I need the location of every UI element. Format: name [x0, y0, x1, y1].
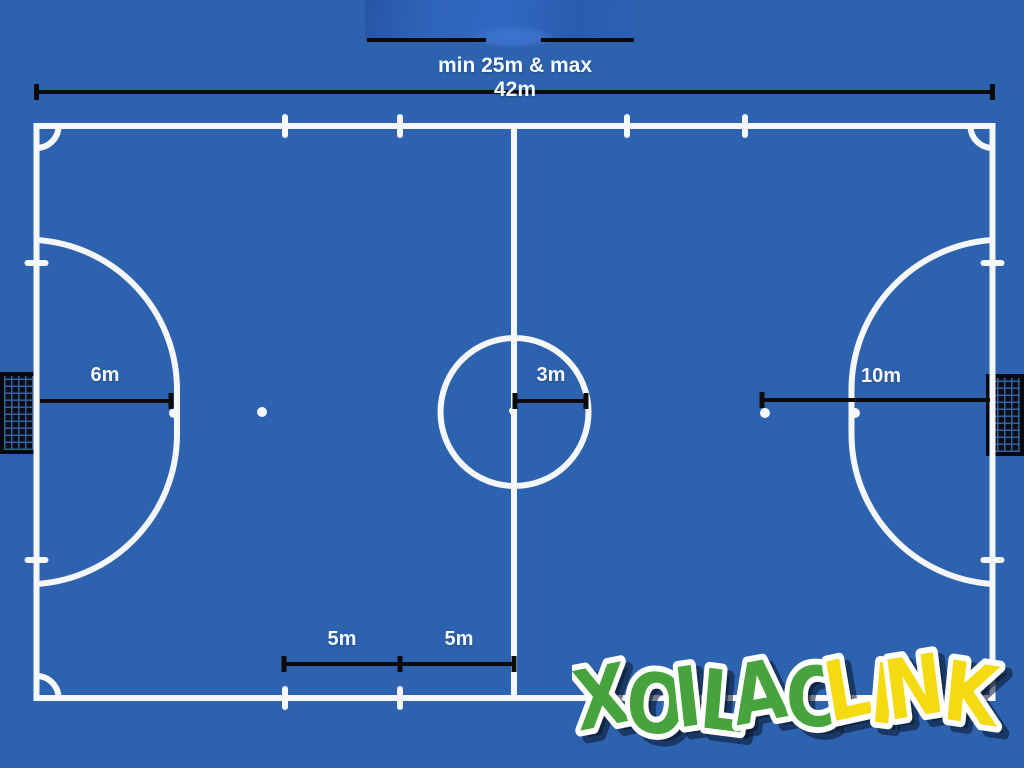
- watermark-logo: XOILACLINK XOILACLINK: [572, 636, 1022, 760]
- watermark-text-yellow: LINK: [817, 636, 1008, 753]
- watermark-text-green: XOILAC: [572, 638, 839, 759]
- corner-arc-top-left: [37, 126, 59, 148]
- right-penalty-area: [852, 240, 993, 584]
- futsal-court-diagram: { "colors": { "background": "#2d63ae", "…: [0, 0, 1024, 768]
- left-penalty-spot: [169, 408, 179, 418]
- right-second-penalty-spot: [760, 408, 770, 418]
- left-second-penalty-spot: [257, 407, 267, 417]
- corner-arc-top-right: [971, 126, 993, 148]
- three-m-label: 3m: [516, 364, 586, 387]
- left-penalty-area: [37, 240, 178, 584]
- five-m-label-right: 5m: [424, 628, 494, 651]
- right-penalty-spot: [850, 408, 860, 418]
- five-m-label-left: 5m: [307, 628, 377, 651]
- corner-arc-bottom-left: [37, 676, 59, 698]
- ten-m-label: 10m: [843, 365, 919, 388]
- six-m-label: 6m: [70, 364, 140, 387]
- width-dimension-label: min 25m & max 42m: [415, 54, 615, 102]
